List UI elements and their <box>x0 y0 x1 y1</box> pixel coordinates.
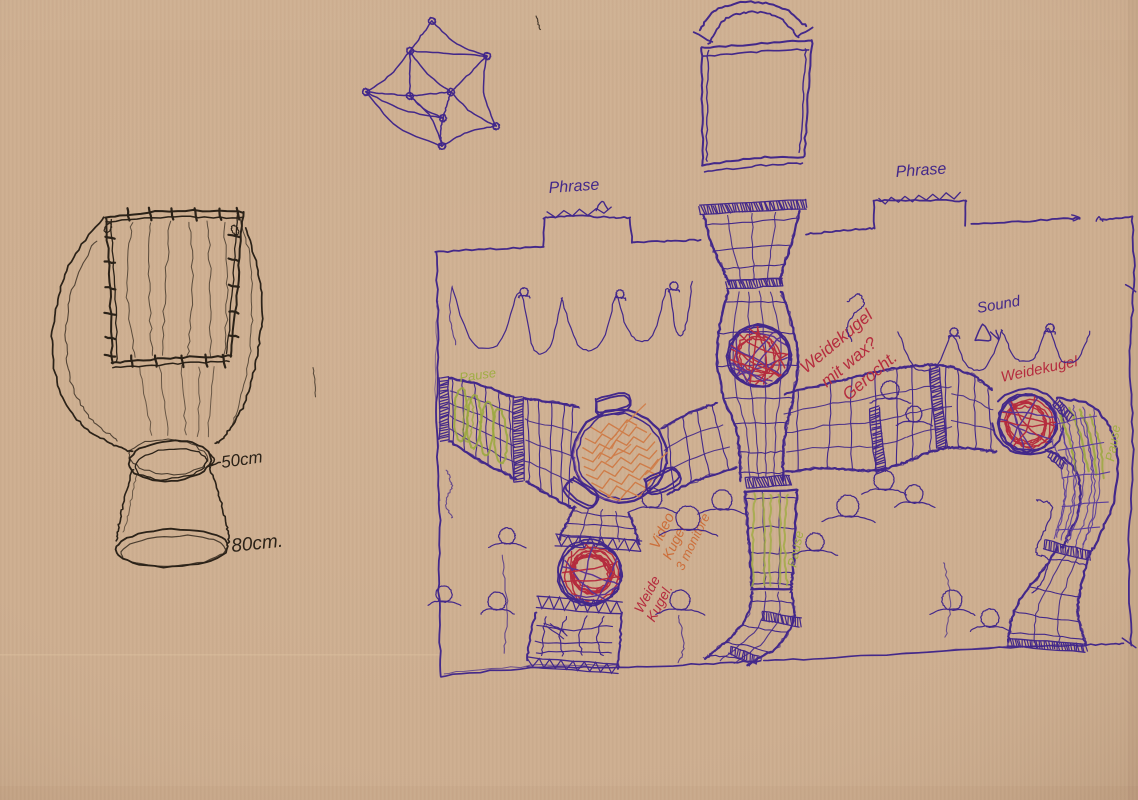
svg-text:Phrase: Phrase <box>548 176 600 197</box>
svg-text:Phrase: Phrase <box>895 160 947 181</box>
